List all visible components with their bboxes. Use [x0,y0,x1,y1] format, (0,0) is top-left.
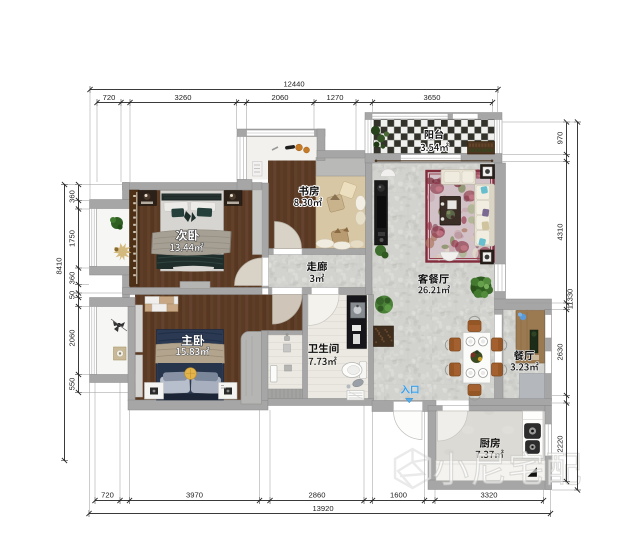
svg-text:2060: 2060 [272,93,289,102]
svg-text:12440: 12440 [283,80,304,89]
svg-text:2860: 2860 [309,491,326,500]
svg-text:360: 360 [68,190,77,203]
svg-text:550: 550 [68,378,77,391]
svg-text:970: 970 [556,132,565,145]
svg-text:3970: 3970 [186,491,203,500]
svg-text:2220: 2220 [556,436,565,453]
svg-text:360: 360 [68,272,77,285]
svg-text:11330: 11330 [566,289,575,310]
svg-text:1750: 1750 [68,230,77,247]
svg-text:2060: 2060 [68,330,77,347]
svg-text:8410: 8410 [55,258,64,275]
svg-text:3650: 3650 [424,93,441,102]
svg-text:3260: 3260 [175,93,192,102]
svg-text:50: 50 [68,291,77,299]
svg-text:2630: 2630 [556,344,565,361]
svg-text:720: 720 [103,93,116,102]
svg-text:3320: 3320 [481,491,498,500]
svg-text:4310: 4310 [556,224,565,241]
svg-text:13920: 13920 [312,504,333,513]
svg-text:1270: 1270 [327,93,344,102]
svg-text:720: 720 [101,491,114,500]
svg-text:1600: 1600 [390,491,407,500]
